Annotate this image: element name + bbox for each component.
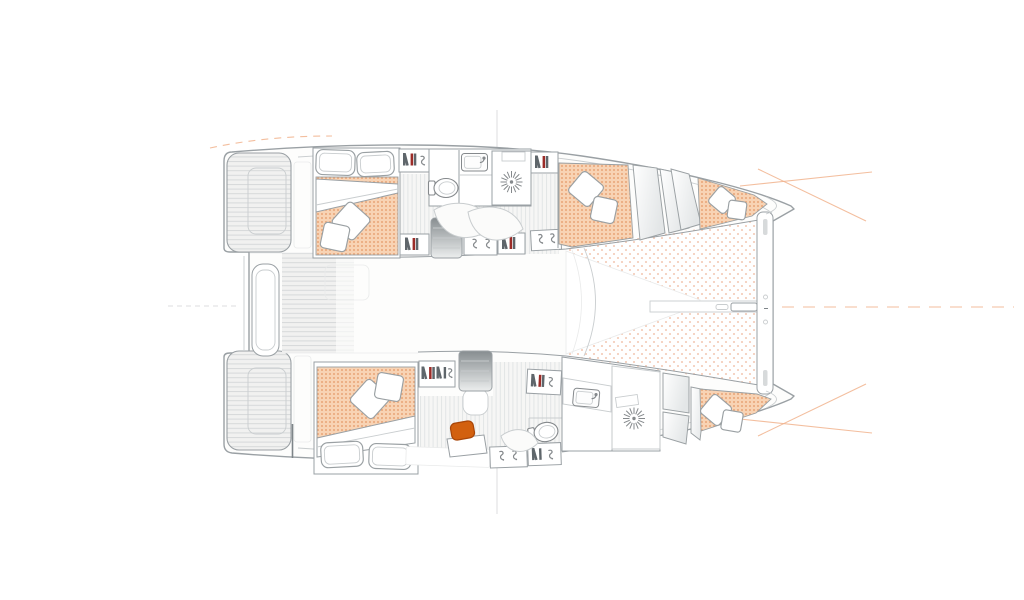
hanging-locker xyxy=(530,229,561,251)
bathroom-top xyxy=(429,149,532,240)
cockpit-floor-fade xyxy=(336,253,354,353)
swim-platform-bottom xyxy=(227,351,291,450)
sink xyxy=(572,388,599,408)
companionway-landing xyxy=(463,389,488,415)
cushion xyxy=(590,196,618,224)
pillow xyxy=(356,151,394,177)
beam-slot-bottom xyxy=(763,370,768,386)
toilet xyxy=(429,179,459,198)
bookshelf xyxy=(526,369,561,395)
pillow xyxy=(320,441,363,468)
nav-stool xyxy=(450,420,476,441)
shower-drain-icon xyxy=(623,408,645,430)
wardrobe-panel xyxy=(663,412,689,444)
guide-bow-top-1 xyxy=(740,172,872,186)
shower-drain-icon xyxy=(501,171,523,193)
bowsprit-fitting-arm xyxy=(716,305,728,310)
pillow xyxy=(369,443,412,469)
cushion xyxy=(374,372,404,402)
cushion xyxy=(320,222,351,253)
deck-plan-svg: Catamaran interior deck plan (top-down f… xyxy=(0,0,1024,600)
pillow xyxy=(316,149,356,175)
cushion xyxy=(727,200,747,220)
aft-cabin-top xyxy=(313,148,400,258)
cushion xyxy=(720,409,743,432)
boat: catamaran-deck-plan aft-cockpit-and-swim… xyxy=(224,145,794,474)
beam-slot-top xyxy=(763,219,768,235)
cockpit-floor xyxy=(282,253,336,353)
forward-crossbeam xyxy=(757,212,773,394)
floor-plan-page: Catamaran interior deck plan (top-down f… xyxy=(0,0,1024,600)
wardrobe-panel xyxy=(663,373,689,413)
shower-seat xyxy=(502,152,525,161)
aft-cabin-bottom xyxy=(314,362,418,474)
guide-bow-bottom-1 xyxy=(740,419,872,433)
sink xyxy=(462,154,488,172)
bowsprit-fitting xyxy=(731,303,757,311)
